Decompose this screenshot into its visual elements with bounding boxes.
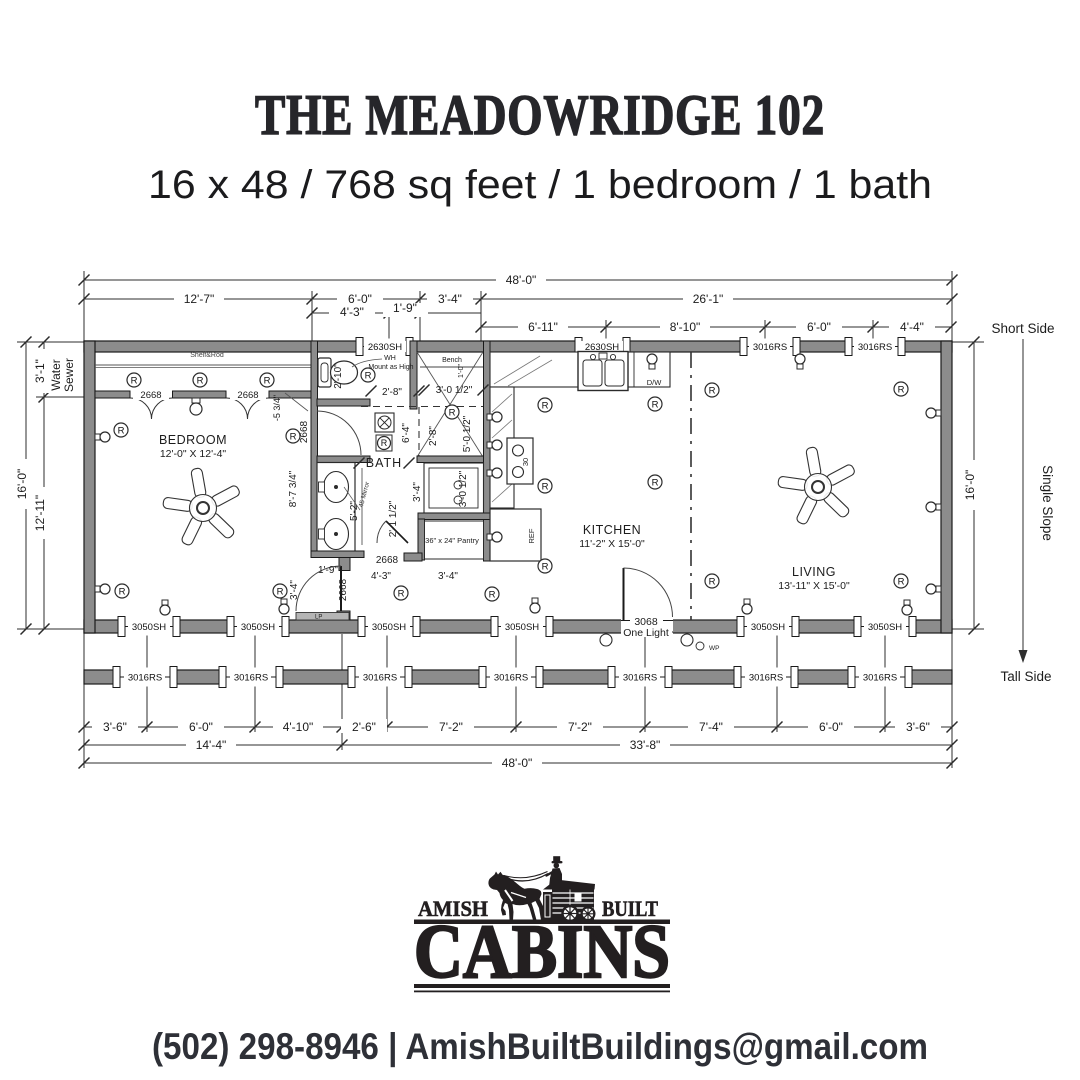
svg-text:4'-3": 4'-3" (371, 571, 391, 582)
svg-text:2'-10": 2'-10" (333, 363, 344, 389)
svg-text:(502) 298-8946 | AmishBuiltBui: (502) 298-8946 | AmishBuiltBuildings@gma… (152, 1026, 928, 1068)
svg-text:3016RS: 3016RS (623, 673, 657, 684)
svg-text:Bench: Bench (442, 357, 462, 364)
svg-text:1'-0": 1'-0" (458, 364, 465, 378)
svg-text:One Light: One Light (623, 627, 669, 639)
svg-text:3016RS: 3016RS (494, 673, 528, 684)
svg-text:2668: 2668 (237, 390, 258, 401)
svg-text:REF: REF (527, 528, 536, 543)
svg-text:16'-0": 16'-0" (963, 470, 977, 501)
svg-text:THE MEADOWRIDGE 102: THE MEADOWRIDGE 102 (255, 84, 825, 147)
svg-text:6'-0": 6'-0" (819, 720, 843, 734)
svg-text:2'-8": 2'-8" (382, 387, 402, 398)
svg-text:3050SH: 3050SH (372, 622, 406, 633)
svg-text:12'-7": 12'-7" (184, 292, 215, 306)
svg-text:4'-3": 4'-3" (340, 305, 364, 319)
svg-text:48'-0": 48'-0" (502, 756, 533, 770)
svg-text:D/W: D/W (647, 378, 663, 387)
svg-text:Sewer: Sewer (62, 358, 76, 392)
svg-text:6'-0": 6'-0" (189, 720, 213, 734)
svg-text:2668: 2668 (299, 420, 310, 443)
svg-text:2'-1 1/2": 2'-1 1/2" (388, 500, 399, 537)
svg-text:3'-0 1/2": 3'-0 1/2" (436, 385, 473, 396)
svg-text:3'-4": 3'-4" (438, 292, 462, 306)
svg-text:6'-4": 6'-4" (401, 423, 412, 443)
svg-text:KITCHEN: KITCHEN (583, 523, 641, 537)
svg-text:BATH: BATH (366, 456, 402, 470)
svg-text:1'-9": 1'-9" (318, 565, 338, 576)
svg-text:7'-2": 7'-2" (568, 720, 592, 734)
svg-text:Shelf&Rod: Shelf&Rod (190, 352, 224, 359)
svg-text:5'-2": 5'-2" (349, 501, 360, 521)
svg-text:4'-4": 4'-4" (900, 320, 924, 334)
svg-text:48'-0": 48'-0" (506, 273, 537, 287)
svg-text:3050SH: 3050SH (241, 622, 275, 633)
svg-text:3050SH: 3050SH (505, 622, 539, 633)
svg-text:3016RS: 3016RS (863, 673, 897, 684)
svg-text:16 x 48 / 768 sq feet / 1 bedr: 16 x 48 / 768 sq feet / 1 bedroom / 1 ba… (148, 163, 932, 207)
svg-text:Water: Water (49, 359, 63, 391)
svg-text:6'-0": 6'-0" (348, 292, 372, 306)
svg-text:CABINS: CABINS (414, 910, 670, 994)
svg-text:3016RS: 3016RS (753, 342, 787, 353)
svg-text:Mount as High: Mount as High (368, 364, 413, 371)
svg-text:13'-11" X 15'-0": 13'-11" X 15'-0" (778, 580, 850, 592)
svg-text:8'-7 3/4": 8'-7 3/4" (288, 470, 299, 507)
svg-text:7'-2": 7'-2" (439, 720, 463, 734)
svg-text:3'-6": 3'-6" (103, 720, 127, 734)
svg-text:7'-4": 7'-4" (699, 720, 723, 734)
svg-text:5'-0 1/2": 5'-0 1/2" (462, 415, 473, 452)
svg-text:3'-1": 3'-1" (33, 359, 47, 383)
svg-text:3'-6": 3'-6" (906, 720, 930, 734)
svg-text:33'-8": 33'-8" (630, 738, 661, 752)
svg-text:2668: 2668 (140, 390, 161, 401)
svg-text:1'-9": 1'-9" (393, 301, 417, 315)
svg-text:2630SH: 2630SH (368, 342, 402, 353)
svg-text:6'-0": 6'-0" (807, 320, 831, 334)
svg-text:Tall Side: Tall Side (1000, 669, 1051, 684)
svg-text:2668: 2668 (376, 555, 399, 566)
svg-text:2668: 2668 (338, 578, 349, 601)
svg-text:3016RS: 3016RS (363, 673, 397, 684)
svg-text:Single Slope: Single Slope (1040, 465, 1055, 541)
svg-text:26'-1": 26'-1" (693, 292, 724, 306)
svg-text:3050SH: 3050SH (132, 622, 166, 633)
svg-text:3016RS: 3016RS (128, 673, 162, 684)
svg-text:3'-4": 3'-4" (438, 571, 458, 582)
svg-text:3'-0 1/2": 3'-0 1/2" (458, 470, 469, 507)
svg-text:3'-4": 3'-4" (412, 482, 423, 502)
svg-text:LIVING: LIVING (792, 565, 836, 579)
svg-text:6'-11": 6'-11" (528, 320, 558, 334)
svg-text:16'-0": 16'-0" (15, 469, 29, 500)
svg-text:36" x 24" Pantry: 36" x 24" Pantry (425, 536, 479, 545)
svg-text:11'-2" X 15'-0": 11'-2" X 15'-0" (579, 538, 645, 550)
svg-text:-5 3/4": -5 3/4" (272, 395, 282, 421)
svg-text:Short Side: Short Side (991, 321, 1054, 336)
svg-text:12'-11": 12'-11" (33, 495, 47, 531)
svg-text:WP: WP (709, 645, 719, 652)
svg-text:8'-10": 8'-10" (670, 320, 701, 334)
svg-text:12'-0" X 12'-4": 12'-0" X 12'-4" (160, 448, 227, 460)
svg-text:3016RS: 3016RS (234, 673, 268, 684)
svg-text:3050SH: 3050SH (868, 622, 902, 633)
svg-text:3'-4": 3'-4" (289, 580, 300, 600)
svg-text:2'-8": 2'-8" (428, 426, 439, 446)
svg-text:3016RS: 3016RS (858, 342, 892, 353)
svg-text:30: 30 (521, 458, 530, 466)
svg-text:BEDROOM: BEDROOM (159, 433, 227, 447)
svg-text:3050SH: 3050SH (751, 622, 785, 633)
svg-text:LP: LP (315, 615, 322, 621)
svg-text:3016RS: 3016RS (749, 673, 783, 684)
svg-text:WH: WH (384, 355, 396, 362)
svg-text:4'-10": 4'-10" (283, 720, 314, 734)
svg-text:14'-4": 14'-4" (196, 738, 227, 752)
svg-text:2'-6": 2'-6" (352, 720, 376, 734)
